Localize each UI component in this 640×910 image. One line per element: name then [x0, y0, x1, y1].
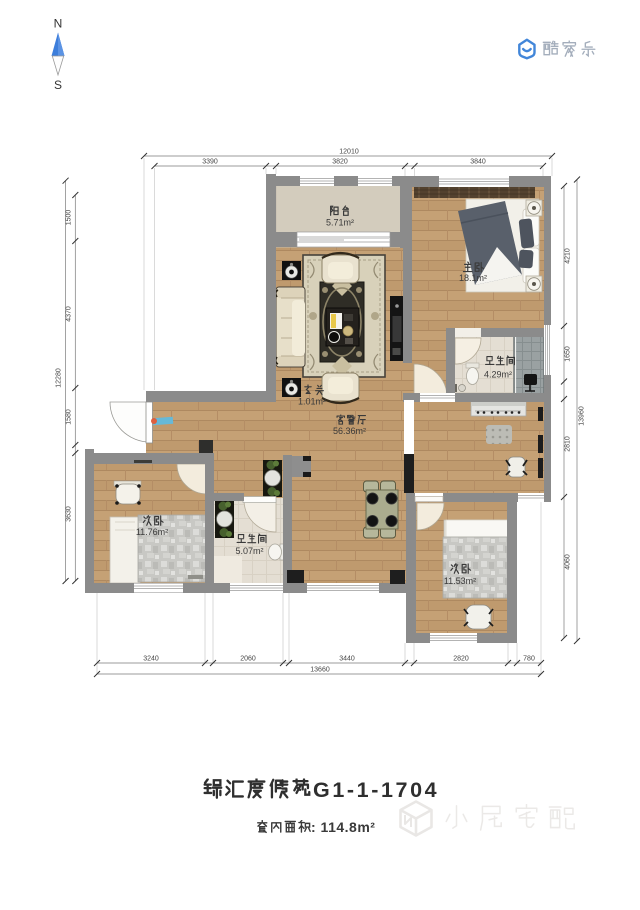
svg-text:12280: 12280 [56, 368, 63, 388]
svg-text:: 114.8m²: : 114.8m² [311, 819, 375, 835]
svg-text:3440: 3440 [339, 656, 355, 663]
svg-text:2060: 2060 [240, 656, 256, 663]
svg-text:4060: 4060 [565, 554, 572, 570]
svg-text:S: S [54, 78, 62, 92]
svg-text:13660: 13660 [310, 667, 330, 674]
svg-text:56.36m²: 56.36m² [333, 426, 366, 436]
svg-text:4.29m²: 4.29m² [484, 370, 512, 380]
svg-text:N: N [54, 17, 63, 31]
svg-text:1500: 1500 [65, 210, 72, 226]
svg-text:11.53m²: 11.53m² [444, 576, 476, 586]
svg-text:5.07m²: 5.07m² [235, 546, 263, 556]
svg-text:5.71m²: 5.71m² [326, 218, 354, 228]
svg-text:11.76m²: 11.76m² [136, 527, 168, 537]
svg-text:3390: 3390 [202, 159, 218, 166]
svg-text:1580: 1580 [65, 409, 72, 425]
svg-text:12010: 12010 [339, 149, 359, 156]
svg-text:4370: 4370 [65, 306, 72, 322]
svg-text:4210: 4210 [565, 248, 572, 264]
svg-text:18.1m²: 18.1m² [459, 273, 487, 283]
svg-text:2820: 2820 [453, 656, 469, 663]
svg-text:G1-1-1704: G1-1-1704 [313, 778, 439, 802]
svg-text:3820: 3820 [332, 159, 348, 166]
svg-text:2810: 2810 [565, 436, 572, 452]
svg-text:1650: 1650 [565, 346, 572, 362]
svg-text:780: 780 [523, 656, 535, 663]
svg-text:1.01m²: 1.01m² [298, 397, 326, 407]
svg-text:3630: 3630 [65, 506, 72, 522]
svg-text:13960: 13960 [579, 406, 586, 426]
svg-text:3840: 3840 [470, 159, 486, 166]
svg-text:3240: 3240 [143, 656, 159, 663]
